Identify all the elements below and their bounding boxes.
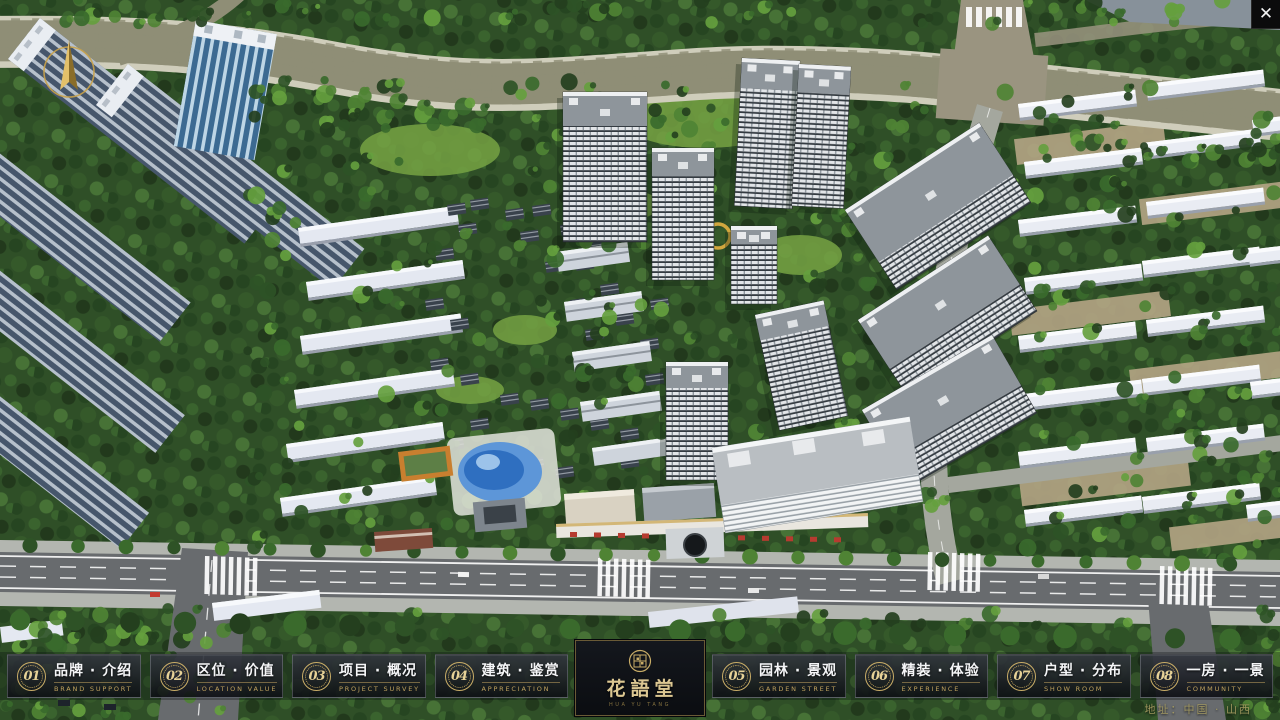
presentation-window: ✕ 01 品牌 · 介绍 BRAND SUPPORT 02 区位 · 价值 LO…: [0, 0, 1280, 720]
map-viewport[interactable]: [0, 0, 1280, 720]
project-logo-title: 花語堂: [601, 674, 678, 701]
seal-icon: [628, 649, 652, 673]
nav-number-badge: 07: [1007, 662, 1036, 691]
nav-number-badge: 02: [160, 662, 189, 691]
nav-group-right: 05 园林 · 景观 GARDEN STREET 06 精装 · 体验 EXPE…: [705, 652, 1280, 700]
nav-label-zh: 区位 · 价值: [197, 660, 278, 680]
nav-label-en: BRAND SUPPORT: [54, 682, 132, 693]
address-label: 地址：中国 · 山西: [1145, 701, 1253, 717]
nav-item-2[interactable]: 02 区位 · 价值 LOCATION VALUE: [150, 654, 284, 698]
nav-number-badge: 08: [1150, 662, 1179, 691]
nav-item-6[interactable]: 06 精装 · 体验 EXPERIENCE: [855, 654, 989, 698]
nav-label-en: SHOW ROOM: [1044, 682, 1122, 693]
bottom-nav-bar: 01 品牌 · 介绍 BRAND SUPPORT 02 区位 · 价值 LOCA…: [0, 652, 1280, 700]
nav-item-7[interactable]: 07 户型 · 分布 SHOW ROOM: [997, 654, 1131, 698]
nav-label-en: APPRECIATION: [482, 682, 560, 693]
nav-label-zh: 园林 · 景观: [759, 660, 837, 680]
nav-label-en: LOCATION VALUE: [197, 682, 278, 693]
nav-number-badge: 06: [865, 662, 894, 691]
nav-label-zh: 建筑 · 鉴赏: [482, 660, 560, 680]
project-logo-subtitle: HUA YU TANG: [609, 702, 671, 708]
nav-label-zh: 项目 · 概况: [339, 660, 420, 680]
nav-label-en: GARDEN STREET: [759, 682, 837, 693]
nav-number-badge: 04: [445, 662, 474, 691]
nav-label-en: EXPERIENCE: [902, 682, 980, 693]
nav-label-en: PROJECT SURVEY: [339, 682, 420, 693]
nav-number-badge: 05: [722, 662, 751, 691]
nav-label-en: COMMUNITY: [1187, 682, 1265, 693]
nav-number-badge: 03: [302, 662, 331, 691]
nav-item-1[interactable]: 01 品牌 · 介绍 BRAND SUPPORT: [7, 654, 141, 698]
nav-label-zh: 品牌 · 介绍: [54, 660, 132, 680]
nav-item-4[interactable]: 04 建筑 · 鉴赏 APPRECIATION: [435, 654, 569, 698]
nav-group-left: 01 品牌 · 介绍 BRAND SUPPORT 02 区位 · 价值 LOCA…: [0, 652, 575, 700]
nav-label-zh: 户型 · 分布: [1044, 660, 1122, 680]
nav-item-8[interactable]: 08 一房 · 一景 COMMUNITY: [1140, 654, 1274, 698]
nav-item-3[interactable]: 03 项目 · 概况 PROJECT SURVEY: [292, 654, 426, 698]
north-compass-icon: [38, 38, 100, 102]
nav-item-5[interactable]: 05 园林 · 景观 GARDEN STREET: [712, 654, 846, 698]
nav-label-zh: 精装 · 体验: [902, 660, 980, 680]
logo-panel[interactable]: 花語堂 HUA YU TANG: [575, 640, 705, 716]
close-button[interactable]: ✕: [1251, 0, 1280, 29]
nav-number-badge: 01: [17, 662, 46, 691]
nav-label-zh: 一房 · 一景: [1187, 660, 1265, 680]
